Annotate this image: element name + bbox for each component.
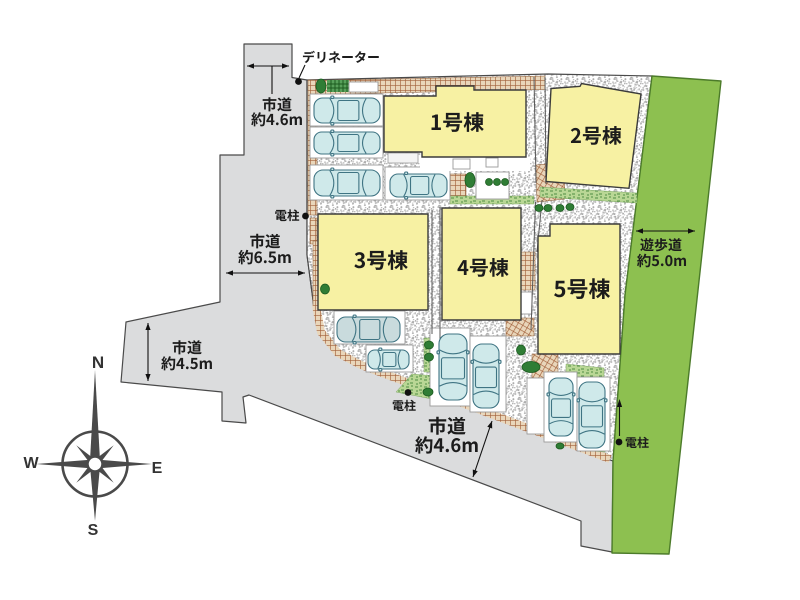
svg-text:S: S bbox=[88, 522, 99, 539]
svg-text:E: E bbox=[152, 460, 163, 477]
svg-text:W: W bbox=[23, 455, 39, 472]
svg-text:N: N bbox=[92, 353, 104, 372]
